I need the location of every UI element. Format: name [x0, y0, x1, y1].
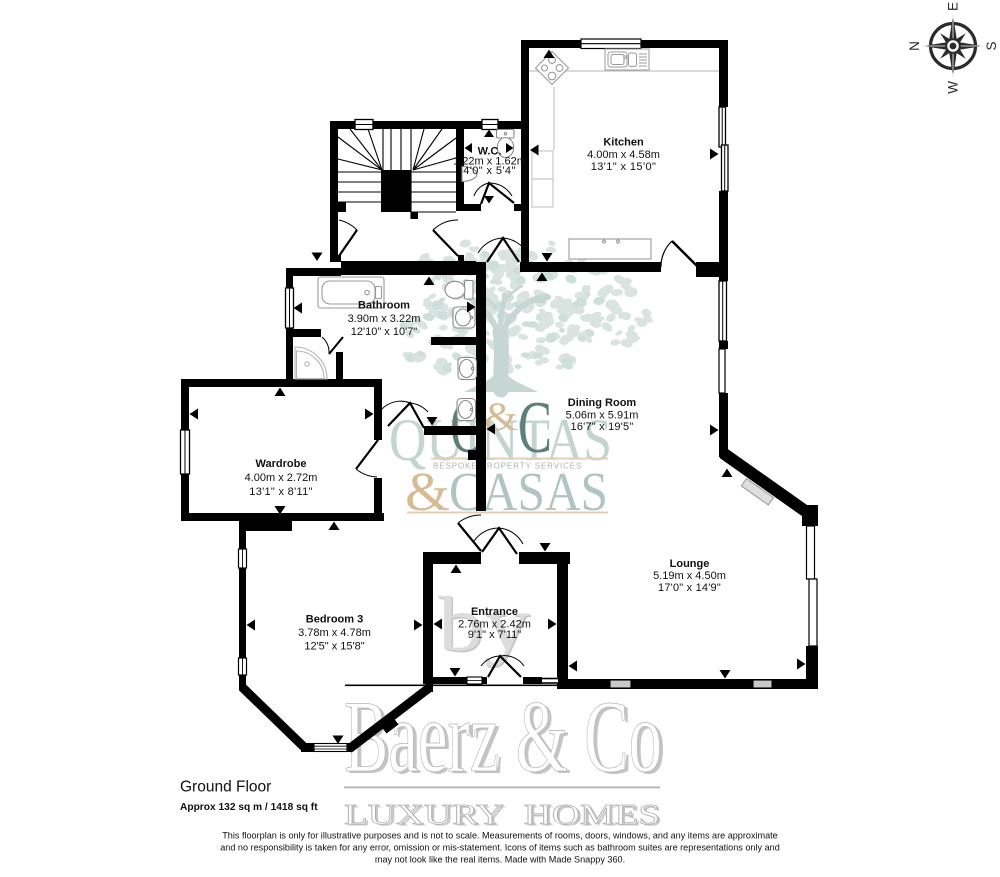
svg-text:Bathroom: Bathroom — [358, 300, 410, 312]
svg-text:Dining Room: Dining Room — [568, 397, 637, 409]
svg-text:Kitchen: Kitchen — [603, 136, 644, 148]
svg-text:This floorplan is only for ill: This floorplan is only for illustrative … — [222, 831, 777, 841]
svg-text:Entrance: Entrance — [471, 606, 518, 618]
svg-text:13'1" x 8'11": 13'1" x 8'11" — [249, 486, 312, 498]
svg-text:4'0" x 5'4": 4'0" x 5'4" — [463, 165, 516, 177]
svg-text:12'10" x 10'7": 12'10" x 10'7" — [351, 326, 418, 338]
svg-text:13'1" x 15'0": 13'1" x 15'0" — [591, 161, 657, 173]
svg-text:N: N — [907, 41, 922, 51]
svg-text:3.90m x 3.22m: 3.90m x 3.22m — [348, 313, 421, 325]
svg-text:E: E — [946, 2, 961, 11]
svg-text:&: & — [484, 394, 518, 439]
svg-text:may not look like the real ite: may not look like the real items. Made w… — [375, 855, 625, 865]
svg-text:12'5" x 15'8": 12'5" x 15'8" — [304, 641, 364, 653]
svg-text:9'1" x 7'11": 9'1" x 7'11" — [468, 629, 521, 641]
svg-text:17'0" x 14'9": 17'0" x 14'9" — [658, 582, 721, 594]
svg-text:C: C — [518, 387, 552, 469]
svg-text:S: S — [984, 41, 999, 50]
svg-text:Lounge: Lounge — [670, 558, 710, 570]
svg-text:5.19m x 4.50m: 5.19m x 4.50m — [653, 570, 726, 582]
svg-text:and no responsibility is taken: and no responsibility is taken for any e… — [220, 843, 780, 853]
svg-text:Approx 132 sq m / 1418 sq ft: Approx 132 sq m / 1418 sq ft — [180, 802, 318, 813]
svg-text:Baerz & Co: Baerz & Co — [344, 680, 662, 794]
svg-text:4.00m x 4.58m: 4.00m x 4.58m — [587, 149, 660, 161]
svg-text:16'7" x 19'5": 16'7" x 19'5" — [571, 421, 634, 433]
svg-text:3.78m x 4.78m: 3.78m x 4.78m — [298, 627, 371, 639]
svg-text:Bedroom 3: Bedroom 3 — [306, 614, 363, 626]
svg-text:Wardrobe: Wardrobe — [256, 458, 307, 470]
svg-text:4.00m x 2.72m: 4.00m x 2.72m — [245, 472, 318, 484]
svg-text:5.06m x 5.91m: 5.06m x 5.91m — [566, 410, 639, 422]
svg-text:LUXURY HOMES: LUXURY HOMES — [344, 800, 660, 831]
svg-text:Ground Floor: Ground Floor — [180, 779, 271, 796]
svg-text:W: W — [946, 81, 961, 94]
